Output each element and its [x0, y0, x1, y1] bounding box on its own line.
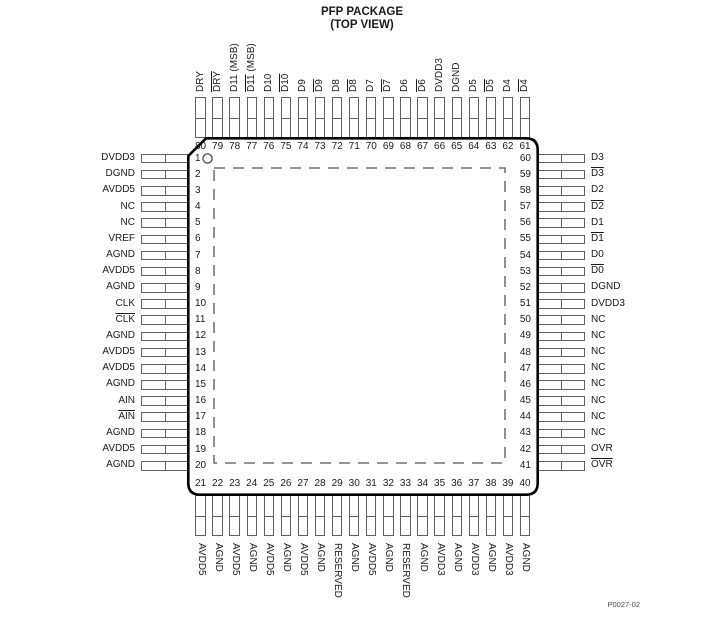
- pin-10-number: 10: [195, 298, 221, 310]
- pin-60-number: 60: [504, 153, 531, 165]
- pin-label-text: AVDD5: [264, 543, 275, 576]
- pin-26-label: AGND: [280, 543, 292, 623]
- pin-label-text: AVDD3: [435, 543, 446, 576]
- pin-label-text: RESERVED: [332, 543, 343, 598]
- pin-label-text: DGND: [591, 281, 620, 292]
- pin-54-label: D0: [591, 249, 691, 261]
- pin-51-number: 51: [504, 298, 531, 310]
- pin-24-label: AGND: [246, 543, 258, 623]
- pin-label-text: D2: [591, 184, 604, 195]
- pin-label-text: D4: [502, 79, 513, 92]
- pin-55-number: 55: [504, 233, 531, 245]
- pin-52-label: DGND: [591, 281, 691, 293]
- pin-54-number: 54: [504, 250, 531, 262]
- pin-25-label: AVDD5: [263, 543, 275, 623]
- pin-label-text: AVDD5: [102, 184, 135, 195]
- view-label: (TOP VIEW): [252, 19, 472, 32]
- pin-label-text: AVDD5: [196, 543, 207, 576]
- pin-10-label: CLK: [40, 298, 135, 310]
- pin-label-text: AGND: [106, 249, 135, 260]
- pin-1-number: 1: [195, 153, 221, 165]
- pin-32-label: AGND: [382, 543, 394, 623]
- pin-36-label: AGND: [451, 543, 463, 623]
- pin-label-text: NC: [591, 362, 605, 373]
- pin-8-number: 8: [195, 266, 221, 278]
- figure-code: P0027-02: [560, 600, 640, 609]
- pin-62-label: D4: [502, 0, 514, 92]
- pin-label-text: D8: [331, 79, 342, 92]
- pin-label-text: AVDD5: [298, 543, 309, 576]
- pin-label-text: AGND: [418, 543, 429, 572]
- pin-33-label: RESERVED: [399, 543, 411, 623]
- pin-56-number: 56: [504, 217, 531, 229]
- pin-39-label: AVDD3: [502, 543, 514, 623]
- pin-17-number: 17: [195, 411, 221, 423]
- pin-label-text: AGND: [315, 543, 326, 572]
- pin-48-number: 48: [504, 347, 531, 359]
- pin-label-text: AGND: [247, 543, 258, 572]
- pin-14-label: AVDD5: [40, 362, 135, 374]
- pinout-diagram: PFP PACKAGE (TOP VIEW) P0027-02 80DRY79D…: [0, 0, 702, 623]
- pin-6-number: 6: [195, 233, 221, 245]
- pin-35-label: AVDD3: [434, 543, 446, 623]
- pin-7-label: AGND: [40, 249, 135, 261]
- pin-label-text: D0: [591, 249, 604, 260]
- pin-label-text: NC: [591, 411, 605, 422]
- pin-label-text: AGND: [106, 459, 135, 470]
- pin-label-text: NC: [591, 346, 605, 357]
- pin-78-label: D11 (MSB): [229, 0, 241, 92]
- pin-45-number: 45: [504, 395, 531, 407]
- pin-47-label: NC: [591, 362, 691, 374]
- pin-label-text-overlined: CLK: [116, 314, 135, 325]
- pin-label-text-overlined: DRY: [212, 71, 223, 92]
- pin-label-text: DVDD3: [591, 298, 625, 309]
- pin-29-label: RESERVED: [331, 543, 343, 623]
- pin-22-label: AGND: [212, 543, 224, 623]
- pin-27-label: AVDD5: [297, 543, 309, 623]
- package-drawing: [0, 0, 702, 623]
- pin-50-number: 50: [504, 314, 531, 326]
- pin-label-text: DRY: [195, 71, 206, 92]
- pin-19-number: 19: [195, 444, 221, 456]
- pin-label-text-overlined: AIN: [118, 411, 135, 422]
- pin-label-text: DGND: [451, 63, 462, 92]
- pin-label-text: AVDD5: [102, 362, 135, 373]
- pin-9-number: 9: [195, 282, 221, 294]
- pin-label-text: AGND: [213, 543, 224, 572]
- pin-2-number: 2: [195, 169, 221, 181]
- pin-label-text: NC: [591, 395, 605, 406]
- pin-label-text: AGND: [106, 378, 135, 389]
- pin-label-text: NC: [591, 427, 605, 438]
- pin-43-label: NC: [591, 427, 691, 439]
- pin-59-number: 59: [504, 169, 531, 181]
- pin-label-text: AIN: [118, 395, 135, 406]
- pin-label-text-overlined: D7: [382, 79, 393, 92]
- pin-34-label: AGND: [417, 543, 429, 623]
- pin-16-number: 16: [195, 395, 221, 407]
- pin-label-text: AGND: [281, 543, 292, 572]
- pin-15-number: 15: [195, 379, 221, 391]
- pin-38-label: AGND: [485, 543, 497, 623]
- pin-label-text: DVDD3: [434, 58, 445, 92]
- pin-label-text: NC: [121, 217, 135, 228]
- pin-label-text: AVDD5: [102, 346, 135, 357]
- pin-label-text: AVDD5: [102, 265, 135, 276]
- pin-label-text-overlined: D0: [591, 265, 604, 276]
- pin-48-label: NC: [591, 346, 691, 358]
- pin-1-label: DVDD3: [40, 152, 135, 164]
- pin-label-text: AVDD3: [503, 543, 514, 576]
- pin-28-label: AGND: [314, 543, 326, 623]
- pin-label-text-overlined: D8: [348, 79, 359, 92]
- pin-52-number: 52: [504, 282, 531, 294]
- pin-label-text-overlined: D3: [591, 168, 604, 179]
- pin-label-text-overlined: D4: [519, 79, 530, 92]
- pin-label-text-overlined: D1: [591, 233, 604, 244]
- pin-14-number: 14: [195, 363, 221, 375]
- pin-label-text: AGND: [106, 330, 135, 341]
- pin-50-label: NC: [591, 314, 691, 326]
- pin-3-number: 3: [195, 185, 221, 197]
- pin-label-text: DGND: [106, 168, 135, 179]
- pin-label-text: AGND: [486, 543, 497, 572]
- pin-label-text-overlined: OVR: [591, 459, 613, 470]
- pin-30-label: AGND: [348, 543, 360, 623]
- pin-15-label: AGND: [40, 378, 135, 390]
- pin-42-label: OVR: [591, 443, 691, 455]
- pin-label-text: NC: [591, 330, 605, 341]
- package-name: PFP PACKAGE: [252, 6, 472, 19]
- pin-12-label: AGND: [40, 330, 135, 342]
- pin-label-text: AVDD5: [230, 543, 241, 576]
- pin-label-text-overlined: D10: [280, 74, 291, 92]
- pin-5-number: 5: [195, 217, 221, 229]
- pin-label-text-overlined: D11: [246, 74, 257, 92]
- pin-45-label: NC: [591, 395, 691, 407]
- pin-60-label: D3: [591, 152, 691, 164]
- pin-13-number: 13: [195, 347, 221, 359]
- pin-23-label: AVDD5: [229, 543, 241, 623]
- pin-label-text: AGND: [349, 543, 360, 572]
- pin-80-label: DRY: [195, 0, 207, 92]
- pin-label-text: VREF: [108, 233, 135, 244]
- pin-label-text: NC: [591, 314, 605, 325]
- pin-11-number: 11: [195, 314, 221, 326]
- pin-6-label: VREF: [40, 233, 135, 245]
- pin-19-label: AVDD5: [40, 443, 135, 455]
- pin-31-label: AVDD5: [365, 543, 377, 623]
- pin-43-number: 43: [504, 427, 531, 439]
- pin-55-label: D1: [591, 233, 691, 245]
- pin-label-text-overlined: D5: [485, 79, 496, 92]
- pin-label-text: (MSB): [246, 43, 257, 74]
- pin-label-text-overlined: D9: [314, 79, 325, 92]
- pin-5-label: NC: [40, 217, 135, 229]
- pin-53-number: 53: [504, 266, 531, 278]
- pin-58-label: D2: [591, 184, 691, 196]
- pin-59-label: D3: [591, 168, 691, 180]
- pin-51-label: DVDD3: [591, 298, 691, 310]
- pin-label-text: D3: [591, 152, 604, 163]
- pin-40-number: 40: [513, 478, 537, 490]
- pin-61-label: D4: [519, 0, 531, 92]
- pin-4-label: NC: [40, 201, 135, 213]
- pin-label-text: AGND: [106, 427, 135, 438]
- pin-9-label: AGND: [40, 281, 135, 293]
- pin-40-label: AGND: [519, 543, 531, 623]
- pin-3-label: AVDD5: [40, 184, 135, 196]
- pin-label-text: AVDD3: [469, 543, 480, 576]
- pin-17-label: AIN: [40, 411, 135, 423]
- pin-7-number: 7: [195, 250, 221, 262]
- pin-8-label: AVDD5: [40, 265, 135, 277]
- pin-label-text: AVDD5: [102, 443, 135, 454]
- package-outline: [188, 138, 537, 494]
- pin-18-number: 18: [195, 427, 221, 439]
- pin-42-number: 42: [504, 444, 531, 456]
- pin-11-label: CLK: [40, 314, 135, 326]
- pin-57-number: 57: [504, 201, 531, 213]
- pin-label-text: OVR: [591, 443, 613, 454]
- pin-58-number: 58: [504, 185, 531, 197]
- pin-46-label: NC: [591, 378, 691, 390]
- pin-63-label: D5: [485, 0, 497, 92]
- pin-16-label: AIN: [40, 395, 135, 407]
- pin-49-number: 49: [504, 330, 531, 342]
- pin-44-label: NC: [591, 411, 691, 423]
- pin-label-text-overlined: D6: [417, 79, 428, 92]
- pin-12-number: 12: [195, 330, 221, 342]
- pin-20-label: AGND: [40, 459, 135, 471]
- pin-label-text: D10: [263, 74, 274, 92]
- pin-label-text: AGND: [106, 281, 135, 292]
- pin-20-number: 20: [195, 460, 221, 472]
- pin-41-number: 41: [504, 460, 531, 472]
- pin-57-label: D2: [591, 201, 691, 213]
- pin-13-label: AVDD5: [40, 346, 135, 358]
- pin-56-label: D1: [591, 217, 691, 229]
- pin-label-text: AVDD5: [366, 543, 377, 576]
- pin-4-number: 4: [195, 201, 221, 213]
- pin-label-text: AGND: [383, 543, 394, 572]
- pin-21-label: AVDD5: [195, 543, 207, 623]
- pin-37-label: AVDD3: [468, 543, 480, 623]
- pin-44-number: 44: [504, 411, 531, 423]
- pin-label-text: D9: [297, 79, 308, 92]
- pin-label-text: D5: [468, 79, 479, 92]
- pin-47-number: 47: [504, 363, 531, 375]
- pin-46-number: 46: [504, 379, 531, 391]
- pin-label-text-overlined: D2: [591, 201, 604, 212]
- pin-label-text: RESERVED: [400, 543, 411, 598]
- pin-41-label: OVR: [591, 459, 691, 471]
- pin-label-text: D6: [399, 79, 410, 92]
- pin-label-text: AGND: [452, 543, 463, 572]
- pin-label-text: D11 (MSB): [229, 43, 240, 92]
- pin-label-text: NC: [591, 378, 605, 389]
- pin-label-text: AGND: [520, 543, 531, 572]
- pin-53-label: D0: [591, 265, 691, 277]
- pin-label-text: NC: [121, 201, 135, 212]
- diagram-title: PFP PACKAGE (TOP VIEW): [252, 6, 472, 32]
- pin-label-text: DVDD3: [101, 152, 135, 163]
- pin-label-text: D1: [591, 217, 604, 228]
- pin-label-text: CLK: [116, 298, 135, 309]
- pin-79-label: DRY: [212, 0, 224, 92]
- pin-18-label: AGND: [40, 427, 135, 439]
- pin-2-label: DGND: [40, 168, 135, 180]
- pin-61-number: 61: [513, 141, 537, 153]
- pin-label-text: D7: [365, 79, 376, 92]
- pin-49-label: NC: [591, 330, 691, 342]
